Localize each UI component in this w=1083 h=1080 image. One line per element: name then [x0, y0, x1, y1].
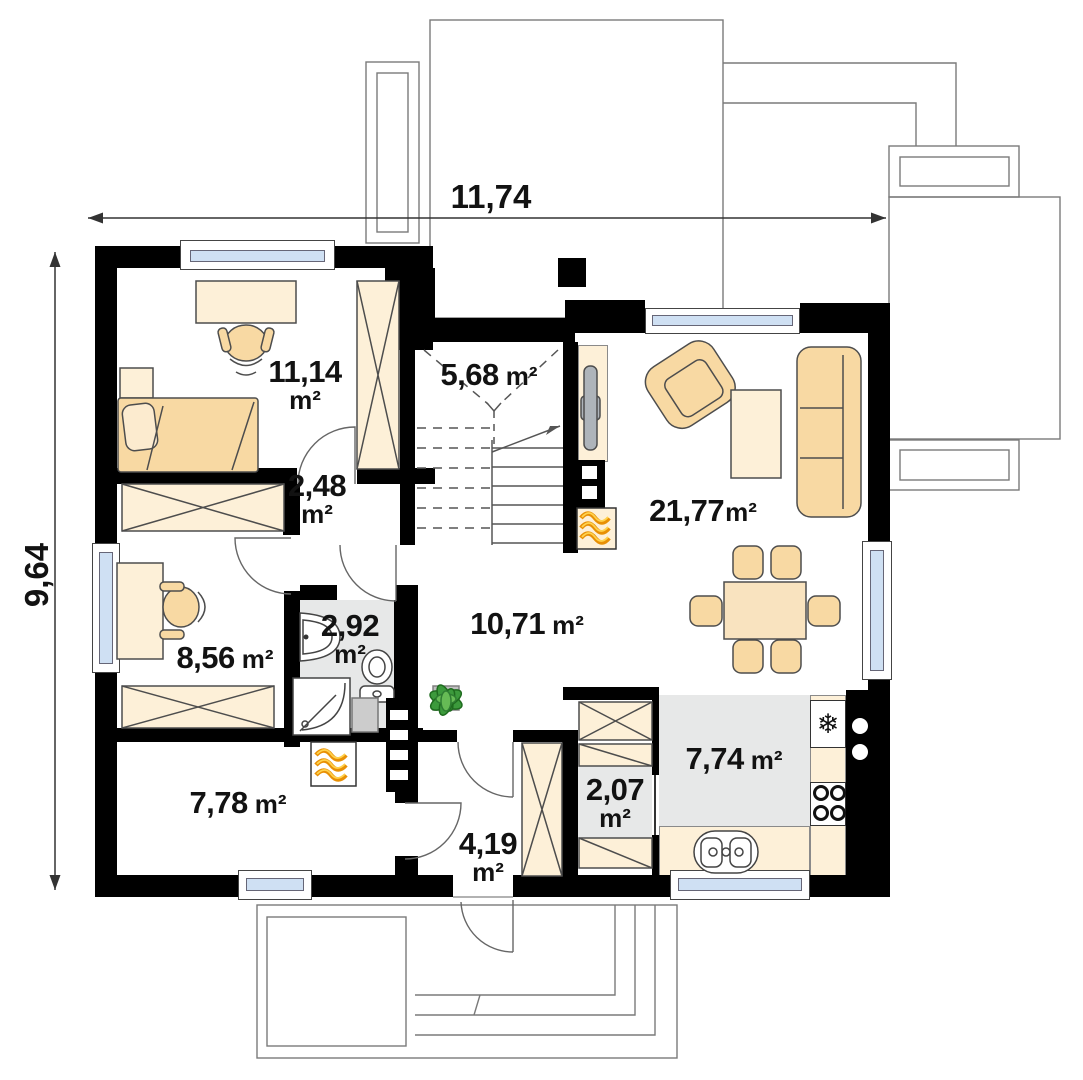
wall-top-stairs [433, 318, 575, 342]
stove [810, 782, 846, 826]
wall-top-living-left [565, 300, 645, 333]
room-label-utility: 7,78m² [158, 788, 318, 819]
outline-terrace-bar-top [889, 146, 1019, 197]
room-label-office: 8,56m² [145, 643, 305, 674]
flue-block [577, 460, 605, 508]
chimney-block [558, 258, 586, 287]
porch-mat [267, 917, 406, 1046]
wall-kitchen-right [846, 690, 890, 880]
room-label-kitchen: 7,74m² [654, 744, 814, 775]
outline-terrace-bar-bottom [889, 440, 1019, 490]
wall-hall-bottom-left [413, 730, 457, 742]
wall-bedroom-stairs-upper [400, 268, 435, 340]
outline-dormer-left [366, 62, 419, 243]
door-opening-office [283, 535, 300, 591]
floor-plan: ❄ 11,74 9,64 11,14m² 5,68m² 2,48m² 21,77… [0, 0, 1083, 1080]
outline-roof-right [723, 63, 956, 146]
exterior-outlines [0, 0, 1083, 1080]
room-label-living-room: 21,77m² [623, 496, 783, 527]
fridge-icon: ❄ [810, 700, 846, 748]
dimension-width-label: 11,74 [421, 178, 561, 216]
outline-terrace [889, 197, 1060, 439]
room-label-upper-hall: 2,48m² [257, 472, 377, 528]
wall-utility-right-a [395, 742, 418, 803]
porch-steps [415, 905, 655, 1035]
room-label-bedroom: 11,14m² [245, 358, 365, 414]
room-label-staircase: 5,68m² [409, 360, 569, 391]
wall-bathroom-top [300, 585, 337, 600]
door-opening-utility [395, 803, 418, 856]
door-opening-bathroom [337, 585, 396, 600]
wall-utility-right-b [395, 856, 418, 875]
room-label-bathroom: 2,92m² [290, 612, 410, 668]
wall-utility-top [95, 728, 423, 742]
door-opening-entry [457, 730, 513, 742]
room-label-pantry: 2,07m² [555, 776, 675, 832]
wall-kitchen-top [563, 687, 656, 700]
room-label-hall: 10,71m² [437, 609, 617, 640]
dimension-height-label: 9,64 [18, 543, 56, 607]
room-label-entry: 4,19m² [428, 830, 548, 886]
tv-cabinet [578, 345, 608, 462]
